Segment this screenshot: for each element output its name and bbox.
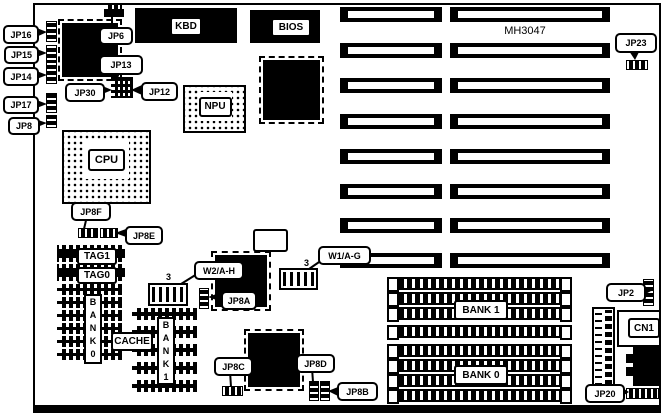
jp8b-label: JP8B (337, 382, 378, 401)
w2-pin3-label: 3 (166, 272, 171, 282)
motherboard-diagram: JP16 JP15 JP14 JP17 JP8 JP6 KBD BIOS JP1… (0, 0, 662, 416)
jp15-label: JP15 (4, 46, 39, 64)
jp12-label: JP12 (141, 82, 178, 101)
jp16-label: JP16 (3, 25, 39, 44)
w2-label: W2/A-H (194, 261, 244, 280)
jp8f-label: JP8F (71, 202, 111, 221)
jp8c-label: JP8C (214, 357, 253, 376)
w1-label: W1/A-G (318, 246, 371, 265)
jp8a-label: JP8A (221, 291, 257, 310)
jp8e-label: JP8E (125, 226, 163, 245)
jp6-label: JP6 (99, 27, 133, 45)
jp23-label: JP23 (615, 33, 657, 53)
jp14-label: JP14 (3, 67, 39, 86)
jp17-label: JP17 (3, 96, 39, 114)
jp13-label: JP13 (99, 55, 143, 75)
jp20-label: JP20 (585, 384, 625, 403)
jp2-label: JP2 (606, 283, 646, 302)
jp30-label: JP30 (65, 83, 105, 102)
jp8-label: JP8 (8, 117, 40, 135)
jp8d-label: JP8D (296, 354, 335, 373)
w1-pin3-label: 3 (304, 258, 309, 268)
